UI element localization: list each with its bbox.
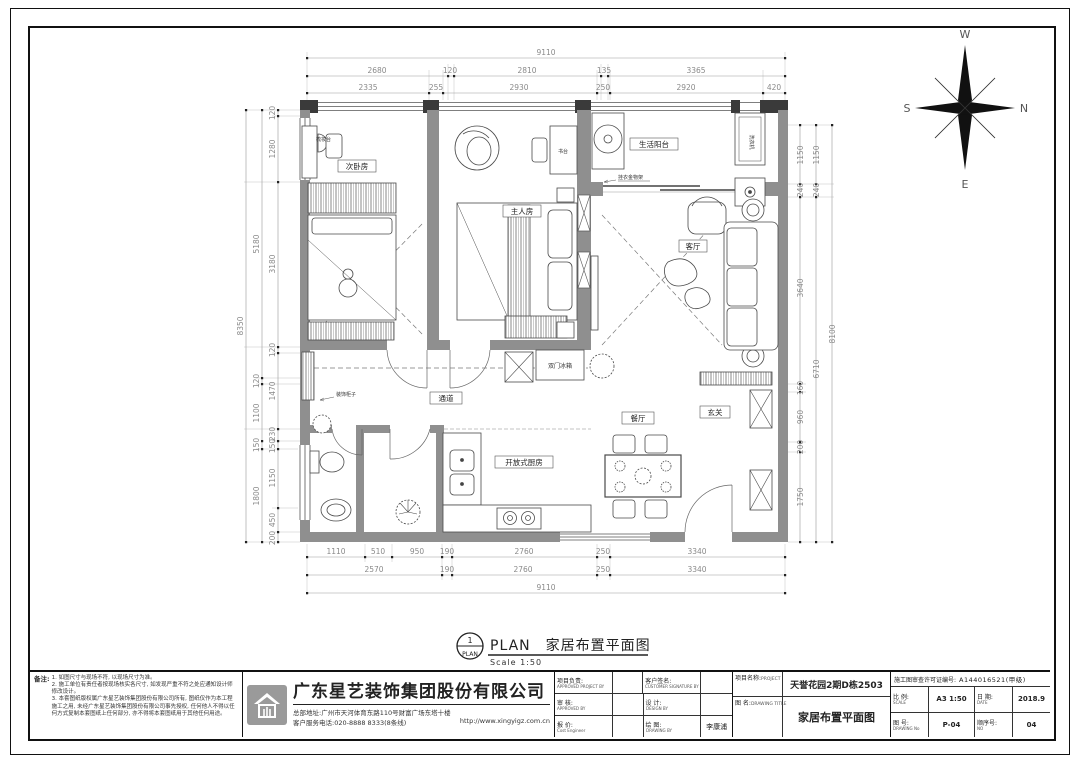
drawing-no-label-en: DRAWING No	[893, 727, 923, 732]
company-logo	[247, 685, 287, 725]
cushion	[727, 228, 757, 266]
floorplan-drawing: 9110 2680 120 2810 135 3365 2335 255 293…	[0, 0, 1080, 670]
dim: 1750	[796, 487, 805, 506]
top-dimensions: 9110 2680 120 2810 135 3365 2335 255 293…	[358, 48, 781, 92]
coffee-table	[685, 288, 710, 309]
round-chair	[455, 126, 499, 170]
dim: 255	[429, 83, 444, 92]
wardrobe	[308, 183, 396, 213]
label-foyer: 玄关	[708, 407, 723, 417]
company-website[interactable]: http://www.xingyigz.com.cn	[460, 717, 550, 727]
label-desk: 书台	[558, 148, 568, 155]
toilet	[320, 452, 344, 472]
toy	[339, 279, 357, 297]
dim: 150	[268, 439, 277, 454]
drawing-no-label: 图 号:	[893, 718, 926, 727]
field-label: 报 价:	[557, 720, 610, 729]
dim: 1800	[252, 486, 261, 505]
company-address: 总部地址:广州市天河体育东路110号财富广场东塔十楼	[293, 707, 550, 717]
chair	[613, 500, 635, 518]
label-dresser: 梳妆台	[316, 136, 331, 143]
dim: 190	[440, 547, 455, 556]
plan-heading: PLAN 家居布置平面图	[490, 637, 651, 654]
project-name: 天誉花园2期D栋2503	[783, 672, 890, 696]
dim: 120	[268, 343, 277, 358]
signature-fields: 项目负责:APPROVED PROJECT BY 客户签名:CUSTOMER S…	[555, 672, 733, 737]
project-label: 项目名称:	[735, 675, 761, 682]
pillow	[312, 218, 392, 234]
notes-panel: 备注: 1. 如图尺寸与现场不符, 以现场尺寸为准。 2. 施工单位有责任者按现…	[30, 672, 243, 737]
field-label-en: APPROVED PROJECT BY	[557, 685, 604, 690]
notes-label: 备注:	[34, 675, 50, 734]
dim: 6710	[812, 359, 821, 378]
console	[700, 372, 772, 385]
date-label: 日 期:	[977, 692, 1010, 701]
chair	[645, 500, 667, 518]
scale-label: 比 例:	[893, 692, 926, 701]
plan-number: 1	[467, 636, 472, 645]
compass-n: N	[1020, 102, 1028, 115]
toy-head	[343, 269, 353, 279]
bedroom2-furniture	[302, 126, 396, 340]
deco-cabinet	[302, 352, 314, 400]
dim-top-total: 9110	[536, 48, 555, 57]
dim: 1150	[268, 468, 277, 487]
dim: 1470	[268, 381, 277, 400]
house-logo-icon	[252, 690, 282, 720]
dim: 1280	[268, 139, 277, 158]
plant	[590, 354, 614, 378]
field-label: 项目负责:	[557, 676, 610, 685]
dim: 9110	[536, 583, 555, 592]
compass-e: E	[962, 178, 969, 191]
field-value	[613, 672, 644, 693]
label-kitchen: 开放式厨房	[505, 457, 543, 467]
compass-s: S	[904, 102, 911, 115]
cabinet	[308, 322, 394, 340]
date-value: 2018.9	[1013, 687, 1050, 713]
project-label-en: PROJECT	[761, 677, 780, 682]
label-corridor: 通道	[439, 393, 454, 403]
date-label-en: DATE	[977, 702, 1007, 707]
field-value	[613, 716, 644, 737]
dim: 200	[796, 440, 805, 455]
seq-no-label: 顺序号:	[977, 718, 1010, 727]
left-dimensions: 8350 5180 120 1100 150 1800 120 1280 318…	[236, 106, 277, 546]
dim: 950	[410, 547, 425, 556]
dim: 8100	[828, 324, 837, 343]
drawing-title-label: 图 名:	[735, 700, 751, 707]
dim: 160	[796, 381, 805, 396]
note-line: 3. 本套图纸版权属广东星艺装饰集团股份有限公司所有, 图纸仅作为本工程施工之用…	[52, 696, 238, 717]
field-label: 审 核:	[557, 698, 610, 707]
drawing-title: 家居布置平面图	[783, 697, 890, 737]
seq-no-value: 04	[1013, 713, 1050, 738]
dim: 190	[440, 565, 455, 574]
cushion	[727, 308, 757, 346]
label-balcony: 生活阳台	[639, 139, 669, 149]
dim: 3180	[268, 254, 277, 273]
dim: 1110	[326, 547, 345, 556]
washbasin	[321, 499, 351, 521]
label-washer: 洗衣机	[748, 134, 755, 149]
field-label: 绘 图:	[646, 720, 699, 729]
permit-label: 施工图审查许可证编号:	[894, 675, 956, 684]
dim: 2920	[676, 83, 695, 92]
dim: 960	[796, 410, 805, 425]
chair	[613, 435, 635, 453]
dim: 3640	[796, 278, 805, 297]
field-value	[613, 694, 644, 715]
dim: 2570	[364, 565, 383, 574]
toilet-tank	[310, 451, 319, 473]
drawing-title-label-en: DRAWING TITLE	[751, 702, 786, 707]
seq-no-label-en: NO	[977, 727, 1007, 732]
dim: 250	[596, 565, 611, 574]
scale-value: A3 1:50	[929, 687, 975, 713]
drawing-sheet: 9110 2680 120 2810 135 3365 2335 255 293…	[0, 0, 1080, 763]
master-furniture	[455, 126, 577, 338]
label-fridge: 双门冰箱	[548, 362, 572, 370]
label-rack: 挂衣金物架	[618, 174, 643, 181]
dim: 250	[596, 547, 611, 556]
plan-title: 1 PLAN PLAN 家居布置平面图 Scale 1:50	[457, 633, 651, 667]
dim: 2760	[514, 547, 533, 556]
compass-rose: W N S E	[904, 28, 1029, 191]
centerpiece	[635, 468, 651, 484]
dim: 3365	[686, 66, 705, 75]
pillow	[548, 210, 572, 258]
side-table	[742, 199, 764, 221]
drawing-no-value: P-04	[929, 713, 975, 738]
label-living: 客厅	[686, 241, 701, 251]
label-dining: 餐厅	[631, 414, 646, 423]
right-dimensions: 1150 240 3640 160 960 200 1750 1150 240 …	[796, 145, 837, 506]
dim: 420	[767, 83, 782, 92]
field-label-en: CUSTOMER SIGNATURE BY	[645, 685, 693, 690]
label-bedroom2: 次卧房	[346, 161, 369, 171]
dim: 3340	[687, 565, 706, 574]
dim: 2930	[509, 83, 528, 92]
desk-chair	[532, 138, 547, 162]
plan-scale: Scale 1:50	[490, 658, 542, 667]
field-label: 设 计:	[646, 698, 699, 707]
coffee-table	[664, 259, 697, 286]
dim: 250	[596, 83, 611, 92]
nightstand	[557, 322, 574, 338]
basin	[594, 125, 622, 153]
dim: 240	[812, 183, 821, 198]
dining-furniture	[605, 435, 681, 518]
dim: 2760	[513, 565, 532, 574]
field-value	[701, 694, 732, 715]
pillow	[548, 262, 572, 310]
project-panel: 项目名称:PROJECT 天誉花园2期D栋2503 图 名:DRAWING TI…	[733, 672, 891, 737]
field-value	[701, 672, 732, 693]
compass-w: W	[960, 28, 971, 41]
plan-circle-label: PLAN	[462, 651, 478, 658]
dim: 120	[443, 66, 458, 75]
dim: 8350	[236, 316, 245, 335]
label-deco-cabinet: 装饰柜子	[336, 391, 356, 398]
field-label: 客户签名:	[645, 676, 698, 685]
dim: 120	[268, 106, 277, 121]
chair	[645, 435, 667, 453]
dim: 2680	[367, 66, 386, 75]
kitchen-furniture	[443, 433, 591, 532]
nightstand	[557, 188, 574, 202]
label-master: 主人房	[511, 206, 534, 216]
field-label-en: DRAWING BY	[646, 729, 693, 734]
scale-label-en: SCALE	[893, 702, 923, 707]
note-line: 2. 施工单位有责任者按现场核实各尺寸, 如发现严重不符之处应通知设计师修改设计…	[52, 682, 238, 696]
company-name: 广东星艺装饰集团股份有限公司	[293, 682, 550, 704]
company-panel: 广东星艺装饰集团股份有限公司 总部地址:广州市天河体育东路110号财富广场东塔十…	[243, 672, 555, 737]
bed-runner	[508, 205, 530, 318]
dim: 1150	[812, 145, 821, 164]
living-furniture	[591, 197, 778, 385]
dim: 2335	[358, 83, 377, 92]
dim: 1150	[796, 145, 805, 164]
cushion	[727, 268, 757, 306]
dim: 135	[597, 66, 612, 75]
dresser	[302, 126, 317, 178]
title-block: 备注: 1. 如图尺寸与现场不符, 以现场尺寸为准。 2. 施工单位有责任者按现…	[30, 670, 1050, 737]
armchair	[688, 202, 726, 234]
dim: 5180	[252, 234, 261, 253]
dim: 240	[796, 183, 805, 198]
dim: 2810	[517, 66, 536, 75]
field-label-en: APPROVED BY	[557, 707, 604, 712]
field-label-en: DESIGN BY	[646, 707, 693, 712]
permit-panel: 施工图审查许可证编号: A144016521(甲级) 比 例:SCALE A3 …	[891, 672, 1050, 737]
dim: 510	[371, 547, 386, 556]
dim: 120	[252, 374, 261, 389]
dim: 200	[268, 531, 277, 546]
company-phone: 客户服务电话:020-8888 8333(8条线)	[293, 717, 406, 727]
drawing-by-name: 李康浦	[701, 716, 732, 737]
field-label-en: Cost Engineer	[557, 729, 604, 734]
bathroom-furniture	[310, 451, 420, 524]
bottom-dimensions: 1110 510 950 190 2760 250 3340 2570 190 …	[326, 547, 706, 592]
tv-cabinet	[591, 256, 598, 330]
dim: 150	[252, 438, 261, 453]
dim: 3340	[687, 547, 706, 556]
dim: 450	[268, 513, 277, 528]
flower	[313, 415, 331, 433]
permit-number: A144016521(甲级)	[959, 674, 1026, 684]
foyer-furniture	[750, 390, 772, 510]
dim: 1100	[252, 403, 261, 422]
